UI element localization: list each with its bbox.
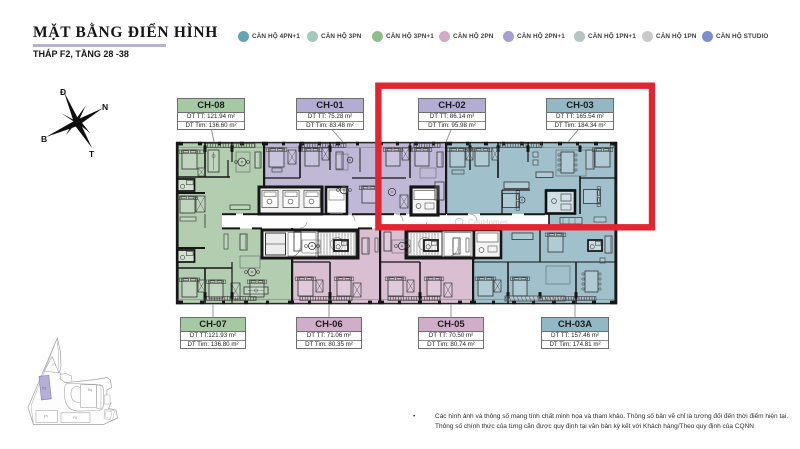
svg-text:F2: F2: [43, 387, 47, 391]
svg-text:F1: F1: [53, 363, 57, 367]
svg-text:F6: F6: [73, 416, 77, 420]
svg-text:F5: F5: [44, 415, 48, 419]
svg-text:B: B: [41, 134, 47, 144]
svg-text:Bq: Bq: [88, 388, 92, 392]
svg-text:N: N: [102, 102, 108, 112]
svg-text:T: T: [89, 149, 95, 159]
svg-text:Đ: Đ: [60, 87, 66, 97]
